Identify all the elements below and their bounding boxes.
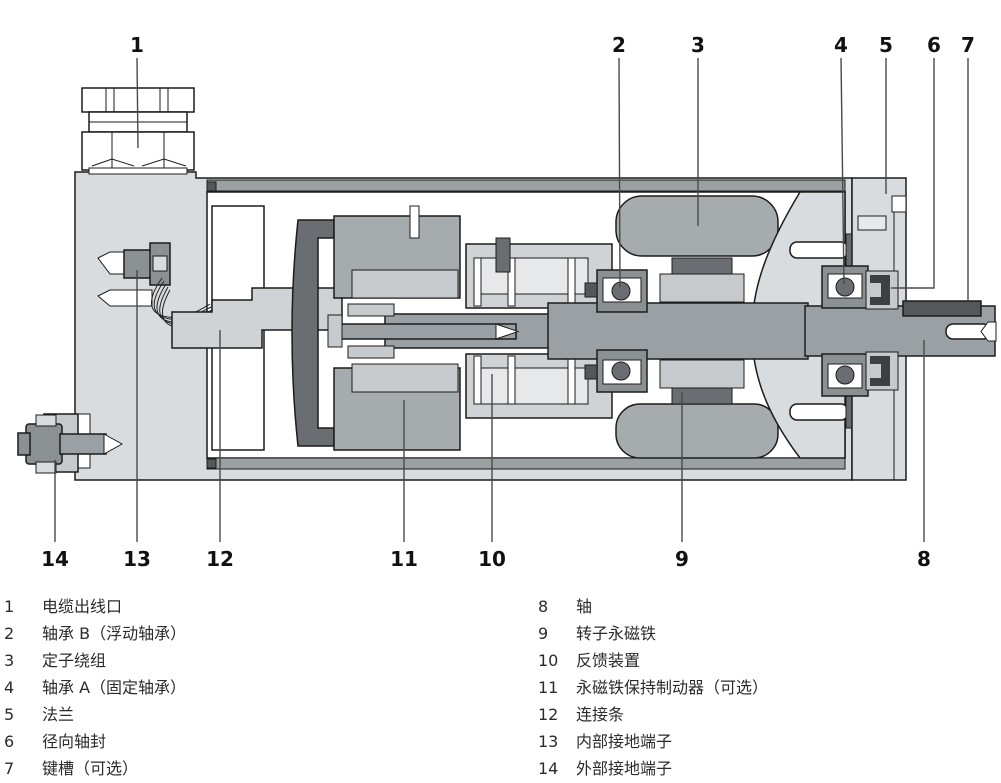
callout-10: 10 bbox=[478, 547, 506, 571]
legend-num: 10 bbox=[538, 648, 576, 675]
callout-8: 8 bbox=[917, 547, 931, 571]
legend-text: 键槽（可选） bbox=[42, 756, 484, 783]
legend-text: 内部接地端子 bbox=[576, 729, 998, 756]
legend-item-5: 5法兰 bbox=[4, 702, 484, 729]
legend-text: 定子绕组 bbox=[42, 648, 484, 675]
legend-text: 径向轴封 bbox=[42, 729, 484, 756]
callout-5: 5 bbox=[879, 33, 893, 57]
legend-item-8: 8轴 bbox=[538, 594, 998, 621]
legend-num: 14 bbox=[538, 756, 576, 783]
motor-cross-section-svg: 1 2 3 4 5 6 7 14 13 12 11 10 9 8 bbox=[0, 0, 1001, 585]
legend-item-10: 10反馈装置 bbox=[538, 648, 998, 675]
legend-num: 6 bbox=[4, 729, 42, 756]
legend-item-13: 13内部接地端子 bbox=[538, 729, 998, 756]
rotor-magnet-bottom bbox=[672, 388, 732, 404]
legend-column-left: 1电缆出线口 2轴承 B（浮动轴承） 3定子绕组 4轴承 A（固定轴承） 5法兰… bbox=[4, 594, 484, 783]
rotor-screw-head bbox=[328, 315, 342, 347]
legend-num: 3 bbox=[4, 648, 42, 675]
rotor-magnet-top bbox=[672, 258, 732, 274]
callout-6: 6 bbox=[927, 33, 941, 57]
legend-num: 1 bbox=[4, 594, 42, 621]
legend-item-12: 12连接条 bbox=[538, 702, 998, 729]
callout-7: 7 bbox=[961, 33, 975, 57]
legend-item-6: 6径向轴封 bbox=[4, 729, 484, 756]
legend-item-4: 4轴承 A（固定轴承） bbox=[4, 675, 484, 702]
legend-text: 外部接地端子 bbox=[576, 756, 998, 783]
callout-3: 3 bbox=[691, 33, 705, 57]
callout-12: 12 bbox=[206, 547, 234, 571]
legend-text: 反馈装置 bbox=[576, 648, 998, 675]
legend-num: 9 bbox=[538, 621, 576, 648]
callout-9: 9 bbox=[675, 547, 689, 571]
legend-num: 11 bbox=[538, 675, 576, 702]
brake-pin bbox=[410, 206, 419, 238]
callout-4: 4 bbox=[834, 33, 848, 57]
page: 1 2 3 4 5 6 7 14 13 12 11 10 9 8 1电缆出线口 … bbox=[0, 0, 1001, 783]
legend-text: 电缆出线口 bbox=[42, 594, 484, 621]
legend-text: 轴承 A（固定轴承） bbox=[42, 675, 484, 702]
callout-13: 13 bbox=[123, 547, 151, 571]
feedback-pin bbox=[496, 238, 510, 272]
motor-cross-section-figure: 1 2 3 4 5 6 7 14 13 12 11 10 9 8 bbox=[0, 0, 1001, 585]
legend-item-7: 7键槽（可选） bbox=[4, 756, 484, 783]
legend-text: 轴 bbox=[576, 594, 998, 621]
legend-num: 5 bbox=[4, 702, 42, 729]
legend-text: 永磁铁保持制动器（可选） bbox=[576, 675, 998, 702]
band-end-bottom bbox=[207, 459, 216, 468]
assembly-screw-top bbox=[790, 242, 848, 258]
legend-item-3: 3定子绕组 bbox=[4, 648, 484, 675]
legend-item-11: 11永磁铁保持制动器（可选） bbox=[538, 675, 998, 702]
legend-num: 8 bbox=[538, 594, 576, 621]
legend-column-right: 8轴 9转子永磁铁 10反馈装置 11永磁铁保持制动器（可选） 12连接条 13… bbox=[538, 594, 998, 783]
assembly-screw-bottom bbox=[790, 404, 848, 420]
band-end-top bbox=[207, 182, 216, 191]
legend-item-14: 14外部接地端子 bbox=[538, 756, 998, 783]
legend-num: 7 bbox=[4, 756, 42, 783]
keyway bbox=[903, 301, 981, 316]
callout-2: 2 bbox=[612, 33, 626, 57]
legend-item-1: 1电缆出线口 bbox=[4, 594, 484, 621]
legend-num: 4 bbox=[4, 675, 42, 702]
legend-text: 转子永磁铁 bbox=[576, 621, 998, 648]
callout-14: 14 bbox=[41, 547, 69, 571]
legend-num: 13 bbox=[538, 729, 576, 756]
legend-item-9: 9转子永磁铁 bbox=[538, 621, 998, 648]
callout-1: 1 bbox=[130, 33, 144, 57]
rotor-screw bbox=[336, 324, 516, 339]
legend-text: 连接条 bbox=[576, 702, 998, 729]
legend-text: 轴承 B（浮动轴承） bbox=[42, 621, 484, 648]
legend-num: 2 bbox=[4, 621, 42, 648]
legend-text: 法兰 bbox=[42, 702, 484, 729]
callout-11: 11 bbox=[390, 547, 418, 571]
legend-item-2: 2轴承 B（浮动轴承） bbox=[4, 621, 484, 648]
legend-num: 12 bbox=[538, 702, 576, 729]
